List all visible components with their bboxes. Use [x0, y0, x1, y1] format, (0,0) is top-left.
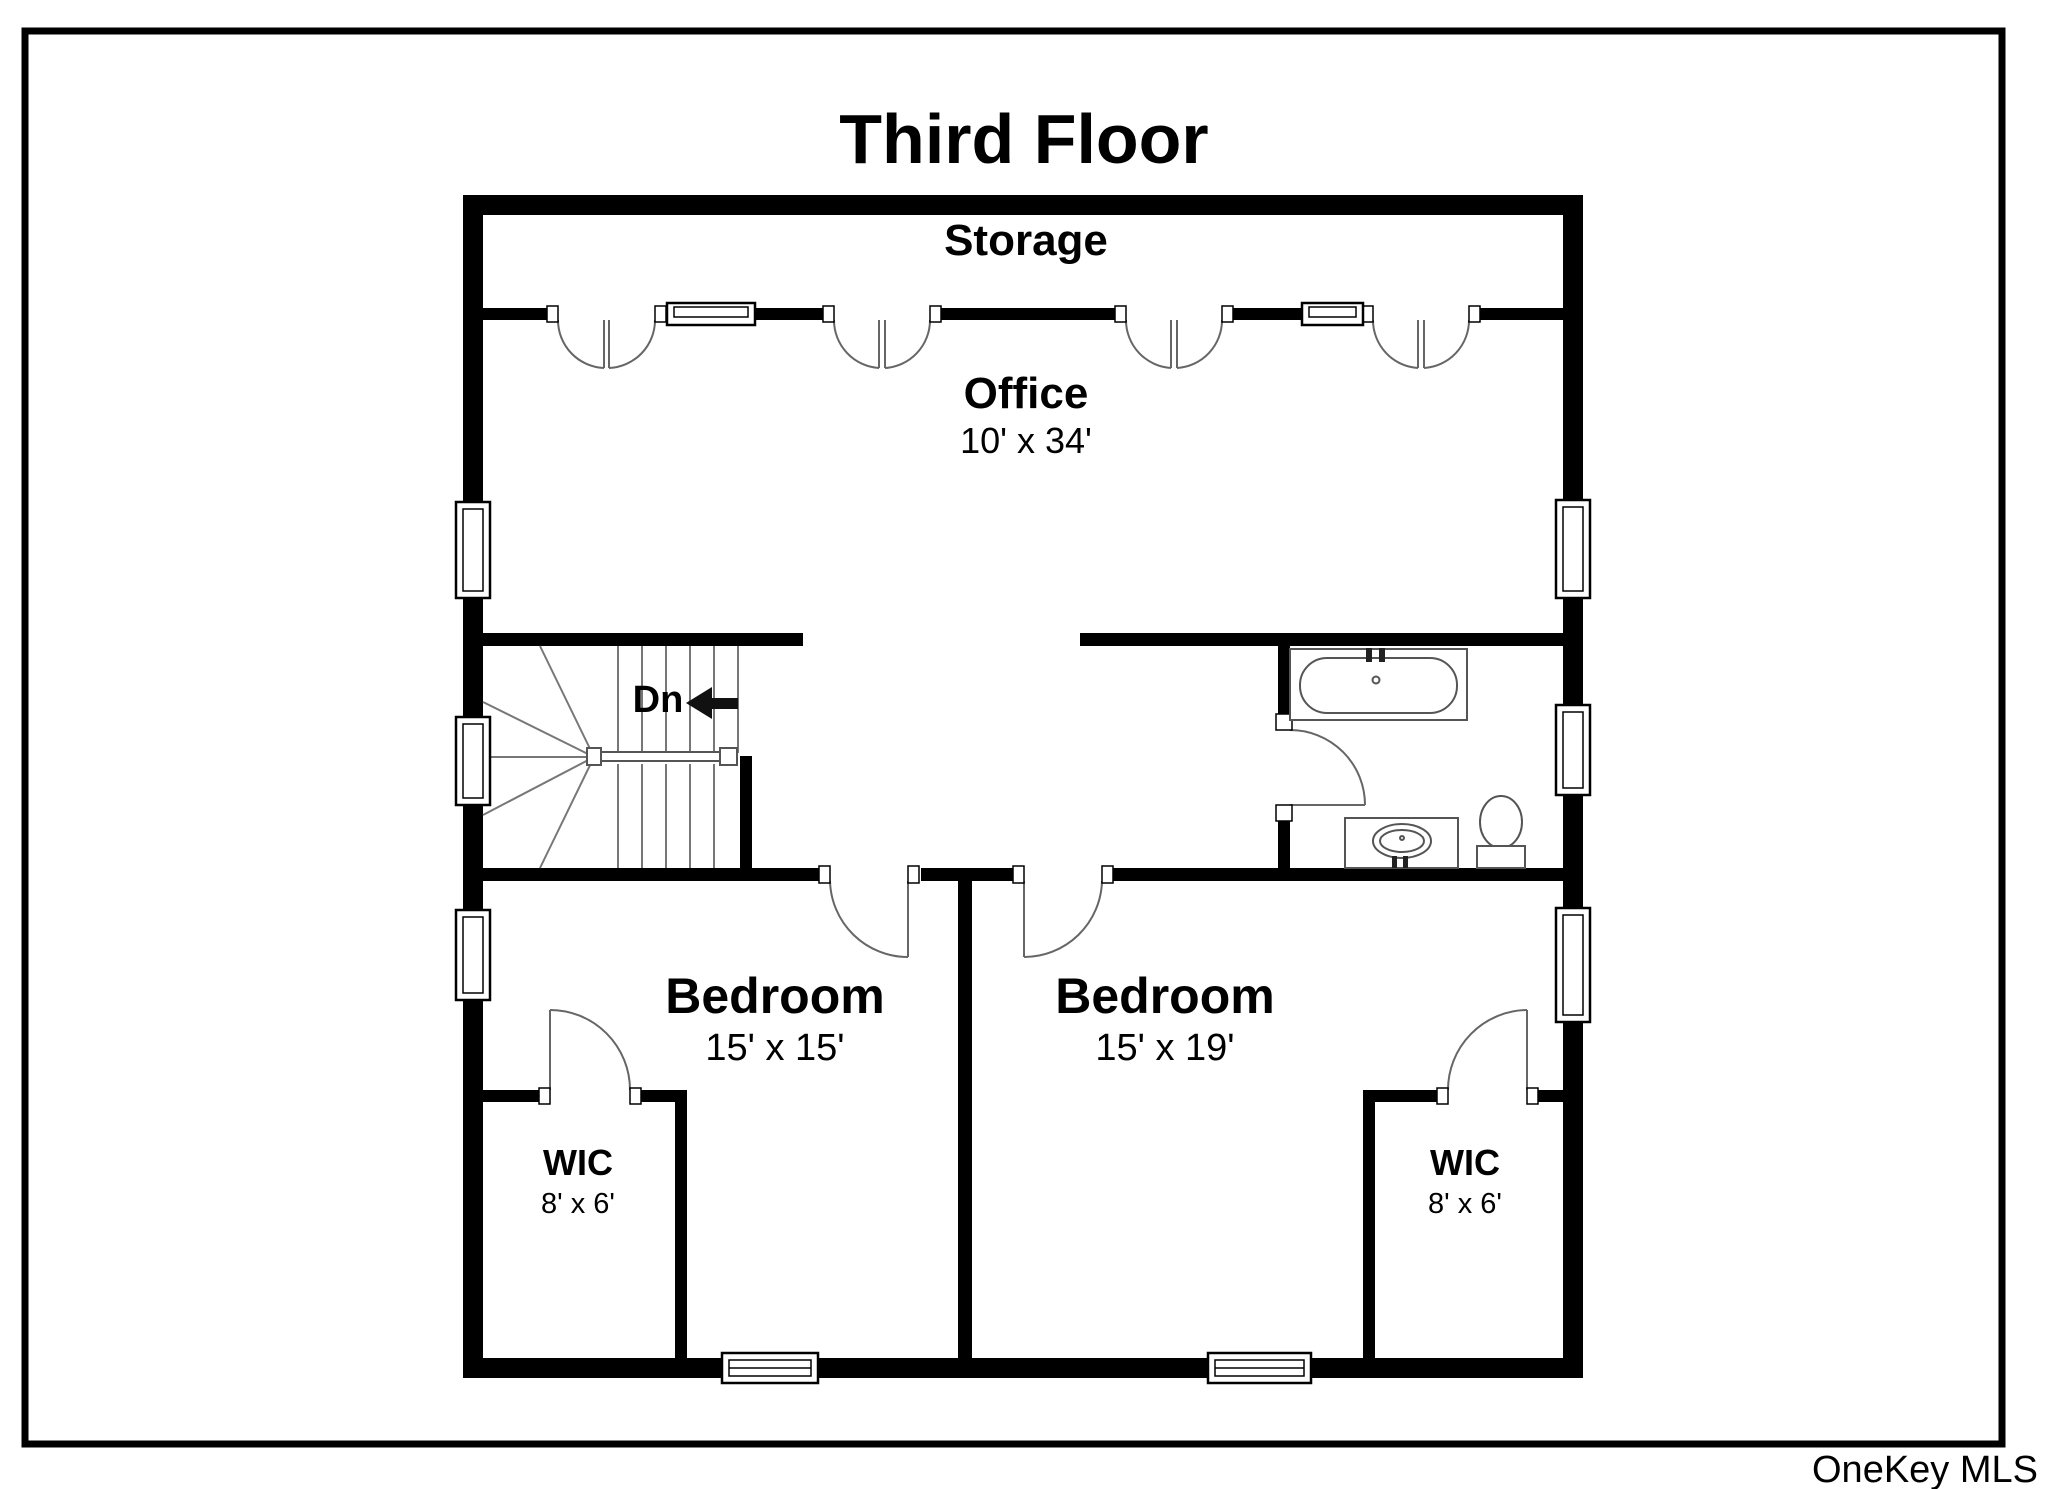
wic-right-top-wall-seg [1538, 1090, 1563, 1102]
sink-drain [1400, 836, 1404, 840]
storage-wall-seg [755, 308, 823, 320]
bathroom-top-wall [1080, 633, 1563, 646]
bathtub-icon [1300, 658, 1457, 713]
stair-down-arrow-icon [686, 687, 738, 719]
storage-wall-seg [483, 308, 547, 320]
bedroom-divider-wall [958, 881, 972, 1358]
hall-bottom-wall-seg [463, 868, 819, 881]
wic-left-label: WIC [543, 1142, 613, 1183]
floor-plan-page: Third Floor [0, 0, 2048, 1489]
outer-wall-bottom [463, 1358, 1583, 1378]
bedroom-right-label: Bedroom [1055, 968, 1274, 1024]
hall-bottom-wall-seg [921, 868, 1013, 881]
bathtub-drain [1373, 677, 1380, 684]
plan-title: Third Floor [839, 100, 1208, 178]
bathroom-fixtures [1290, 649, 1525, 868]
wic-right-label: WIC [1430, 1142, 1500, 1183]
storage-wall-seg [941, 308, 1115, 320]
wic-left-right-wall [675, 1090, 687, 1358]
toilet-tank [1477, 846, 1525, 868]
stair-direction-label: Dn [633, 679, 684, 721]
wic-right-dims: 8' x 6' [1428, 1188, 1502, 1220]
office-label: Office [964, 369, 1089, 418]
toilet-bowl-icon [1480, 796, 1522, 848]
storage-wall-seg [1480, 308, 1563, 320]
wic-right-left-wall [1363, 1090, 1375, 1358]
floor-plan-drawing: Third Floor [0, 0, 2048, 1489]
bedroom-right-dims: 15' x 19' [1095, 1027, 1234, 1069]
bedroom-left-label: Bedroom [665, 968, 884, 1024]
storage-wall-seg [1233, 308, 1302, 320]
stair-right-wall [740, 756, 752, 868]
watermark: OneKey MLS [1812, 1449, 2038, 1489]
outer-wall-top [463, 195, 1583, 215]
storage-label: Storage [944, 216, 1108, 265]
hall-bottom-wall-seg [1113, 868, 1563, 881]
wic-left-dims: 8' x 6' [541, 1188, 615, 1220]
wic-left-top-wall-seg [463, 1090, 539, 1102]
stair-top-wall [483, 633, 803, 646]
bedroom-left-dims: 15' x 15' [705, 1027, 844, 1069]
office-dims: 10' x 34' [960, 420, 1092, 461]
